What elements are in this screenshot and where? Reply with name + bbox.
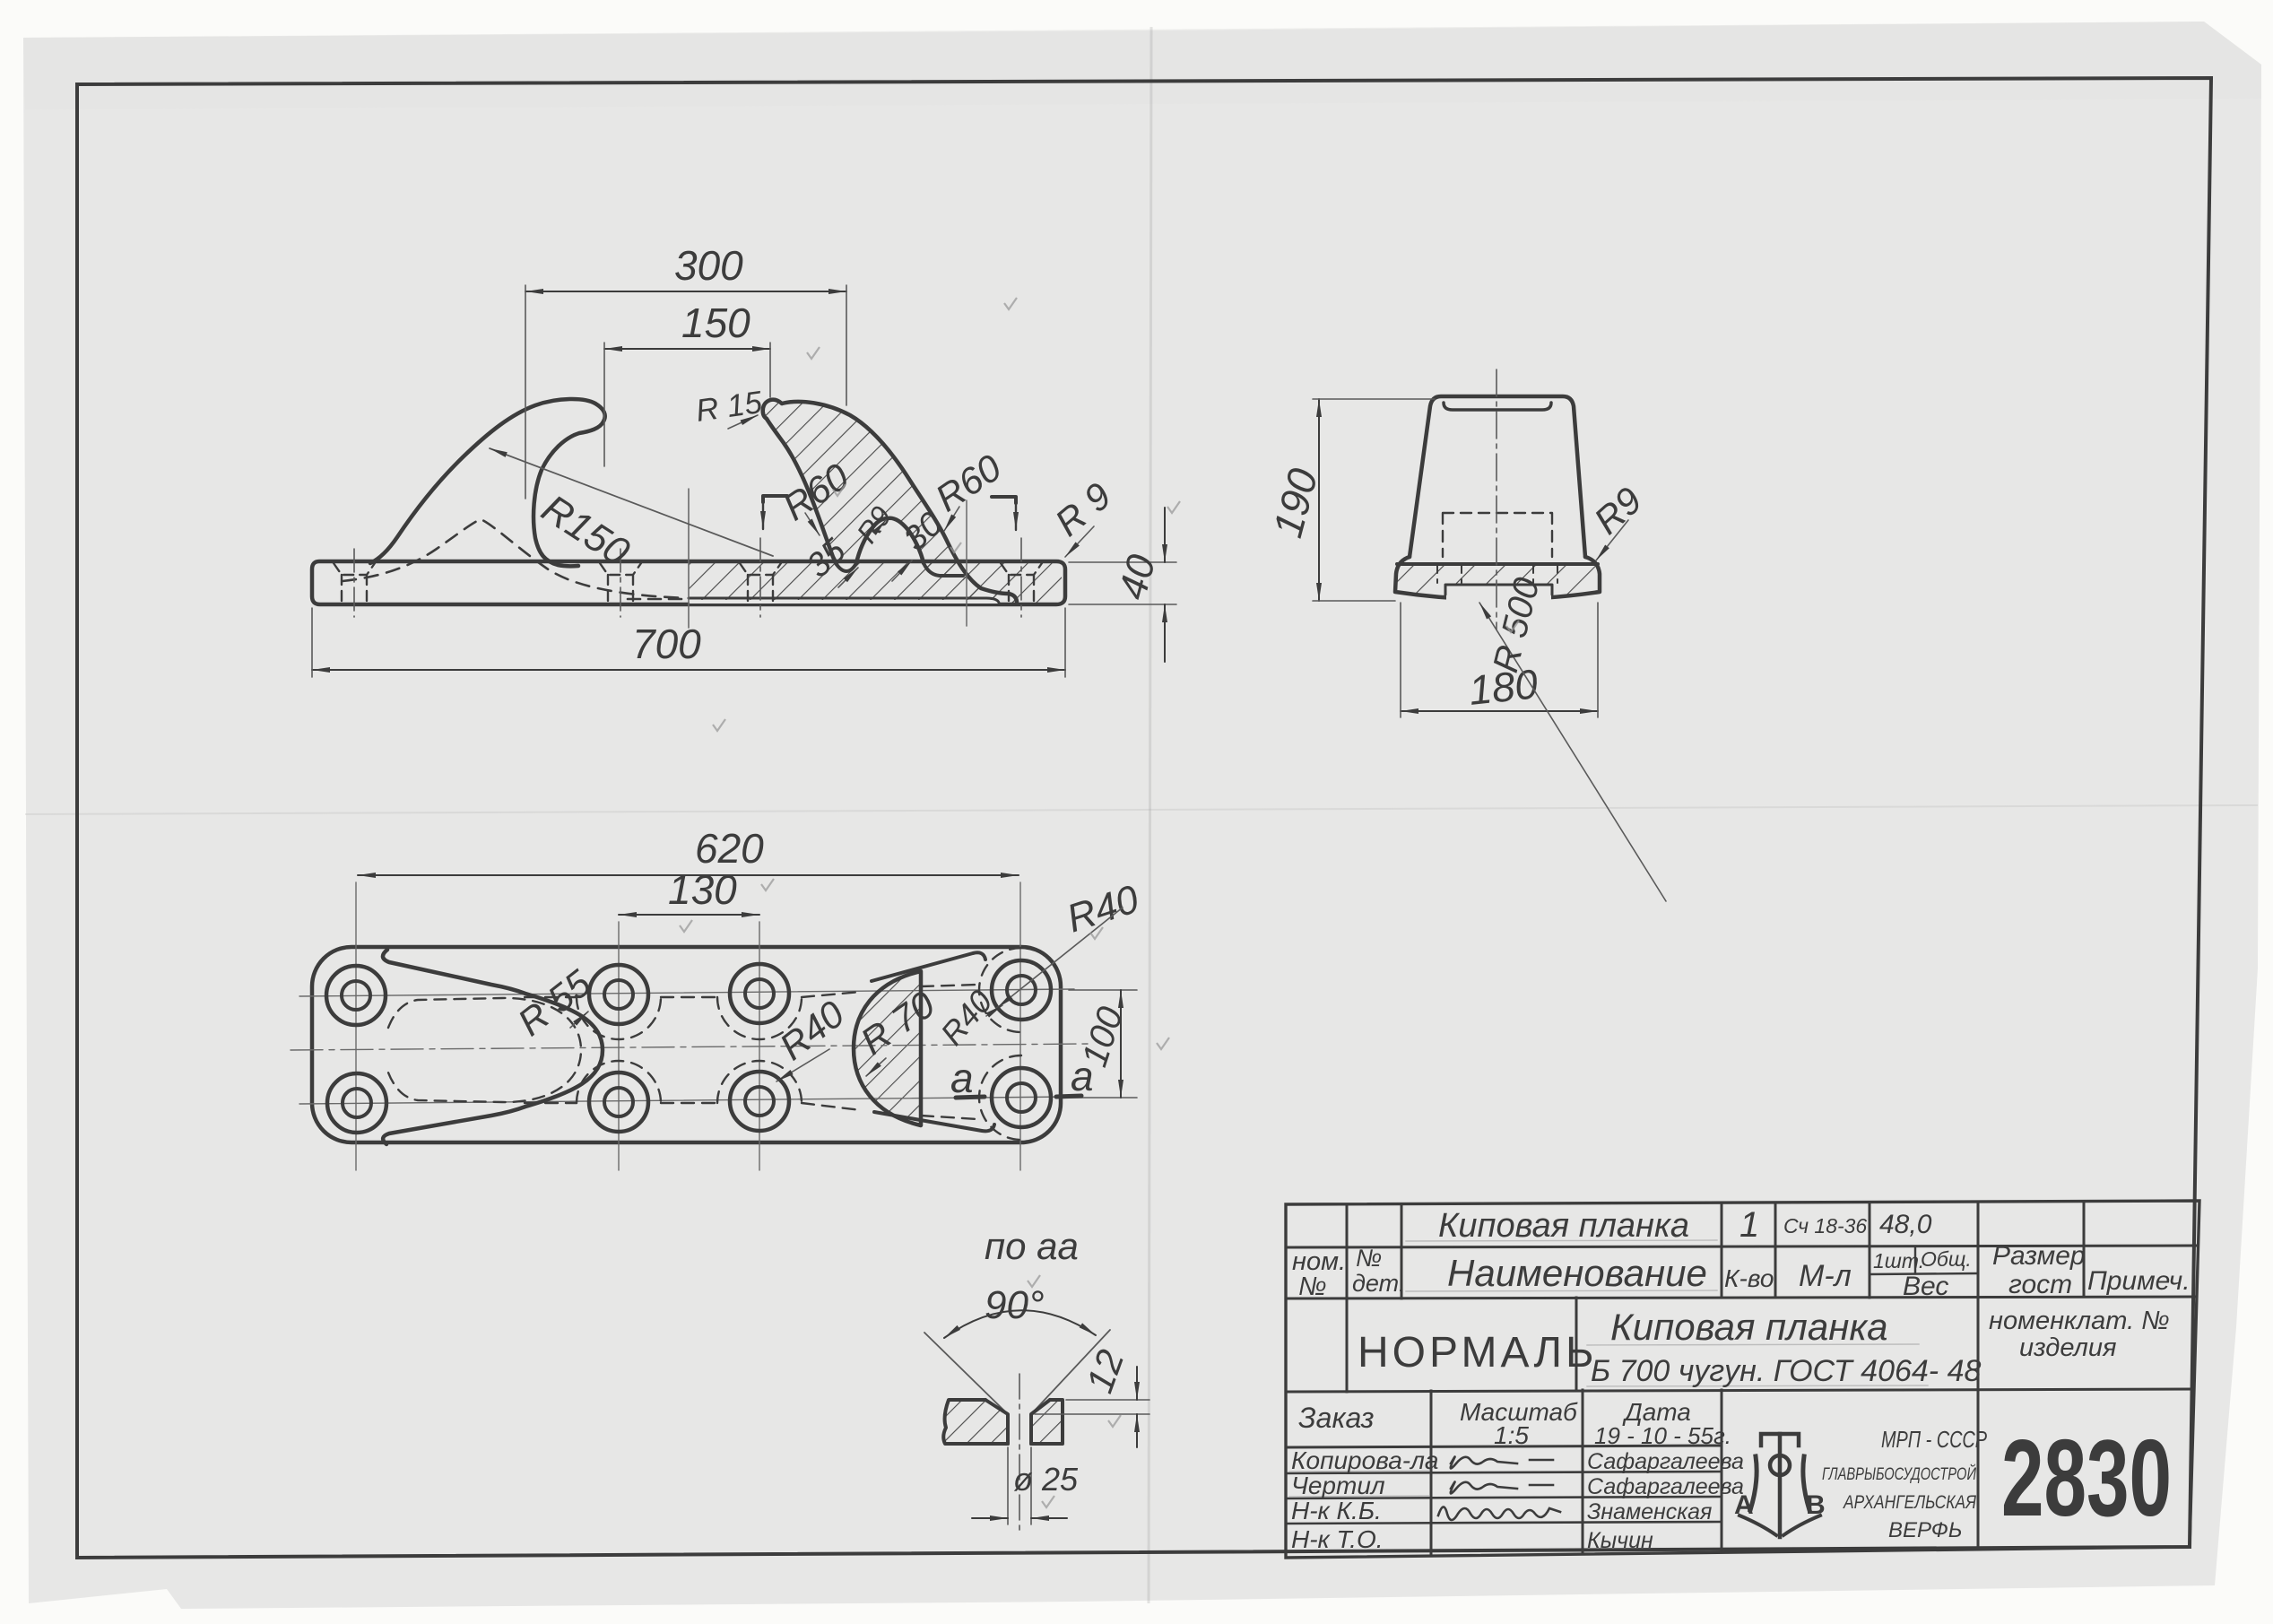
svg-text:ø 25: ø 25 — [1013, 1461, 1079, 1498]
svg-text:150: 150 — [681, 300, 750, 346]
svg-text:ГЛАВРЫБОСУДОСТРОЙ: ГЛАВРЫБОСУДОСТРОЙ — [1822, 1464, 1976, 1484]
svg-text:a: a — [1071, 1053, 1094, 1099]
svg-text:2830: 2830 — [2001, 1418, 2172, 1540]
svg-text:1: 1 — [1739, 1205, 1759, 1245]
svg-text:90°: 90° — [985, 1283, 1045, 1327]
svg-text:К-во: К-во — [1724, 1264, 1774, 1292]
svg-text:дет.: дет. — [1352, 1270, 1405, 1297]
svg-text:НОРМАЛЬ: НОРМАЛЬ — [1358, 1329, 1598, 1376]
svg-text:Киповая планка: Киповая планка — [1438, 1207, 1689, 1245]
svg-text:Копирова-ла: Копирова-ла — [1291, 1446, 1438, 1474]
svg-text:М-л: М-л — [1799, 1259, 1852, 1293]
svg-text:№: № — [1356, 1245, 1382, 1272]
svg-text:по аа: по аа — [985, 1225, 1079, 1267]
svg-text:Общ.: Общ. — [1921, 1247, 1972, 1271]
svg-text:В: В — [1806, 1490, 1826, 1520]
svg-text:изделия: изделия — [2019, 1333, 2116, 1362]
svg-text:300: 300 — [674, 242, 743, 289]
svg-text:А: А — [1734, 1490, 1754, 1520]
svg-text:Сафаргалеева: Сафаргалеева — [1587, 1474, 1744, 1499]
svg-text:Сч 18-36: Сч 18-36 — [1783, 1214, 1867, 1238]
svg-text:Вес: Вес — [1903, 1272, 1948, 1301]
svg-text:130: 130 — [668, 866, 737, 913]
svg-text:гост: гост — [2008, 1270, 2072, 1299]
svg-text:Заказ: Заказ — [1298, 1402, 1375, 1434]
svg-text:Знаменская: Знаменская — [1587, 1499, 1712, 1524]
svg-text:АРХАНГЕЛЬСКАЯ: АРХАНГЕЛЬСКАЯ — [1842, 1492, 1976, 1513]
svg-text:№: № — [1298, 1272, 1326, 1301]
svg-text:МРП - СССР: МРП - СССР — [1881, 1426, 1987, 1453]
svg-text:Сафаргалеева: Сафаргалеева — [1587, 1449, 1744, 1474]
svg-text:Киповая планка: Киповая планка — [1610, 1306, 1888, 1348]
svg-text:48,0: 48,0 — [1879, 1210, 1932, 1239]
svg-text:1:5: 1:5 — [1494, 1421, 1529, 1449]
svg-text:Наименование: Наименование — [1447, 1252, 1707, 1294]
svg-text:Н-к К.Б.: Н-к К.Б. — [1291, 1497, 1382, 1524]
svg-text:19 - 10 - 55г.: 19 - 10 - 55г. — [1594, 1422, 1731, 1449]
svg-text:Н-к Т.О.: Н-к Т.О. — [1291, 1525, 1384, 1553]
svg-text:a: a — [950, 1055, 974, 1101]
svg-text:номенклат. №: номенклат. № — [1989, 1307, 2170, 1335]
svg-text:Кычин: Кычин — [1587, 1528, 1653, 1553]
svg-text:700: 700 — [632, 621, 701, 667]
svg-text:Б 700 чугун. ГОСТ 4064- 48: Б 700 чугун. ГОСТ 4064- 48 — [1591, 1354, 1981, 1388]
svg-text:Примеч.: Примеч. — [2087, 1266, 2191, 1296]
svg-text:ВЕРФЬ: ВЕРФЬ — [1888, 1518, 1962, 1542]
svg-text:Размер: Размер — [1992, 1241, 2086, 1271]
svg-text:620: 620 — [695, 825, 764, 872]
svg-text:Чертил: Чертил — [1291, 1472, 1385, 1499]
svg-text:1шт.: 1шт. — [1873, 1249, 1924, 1272]
